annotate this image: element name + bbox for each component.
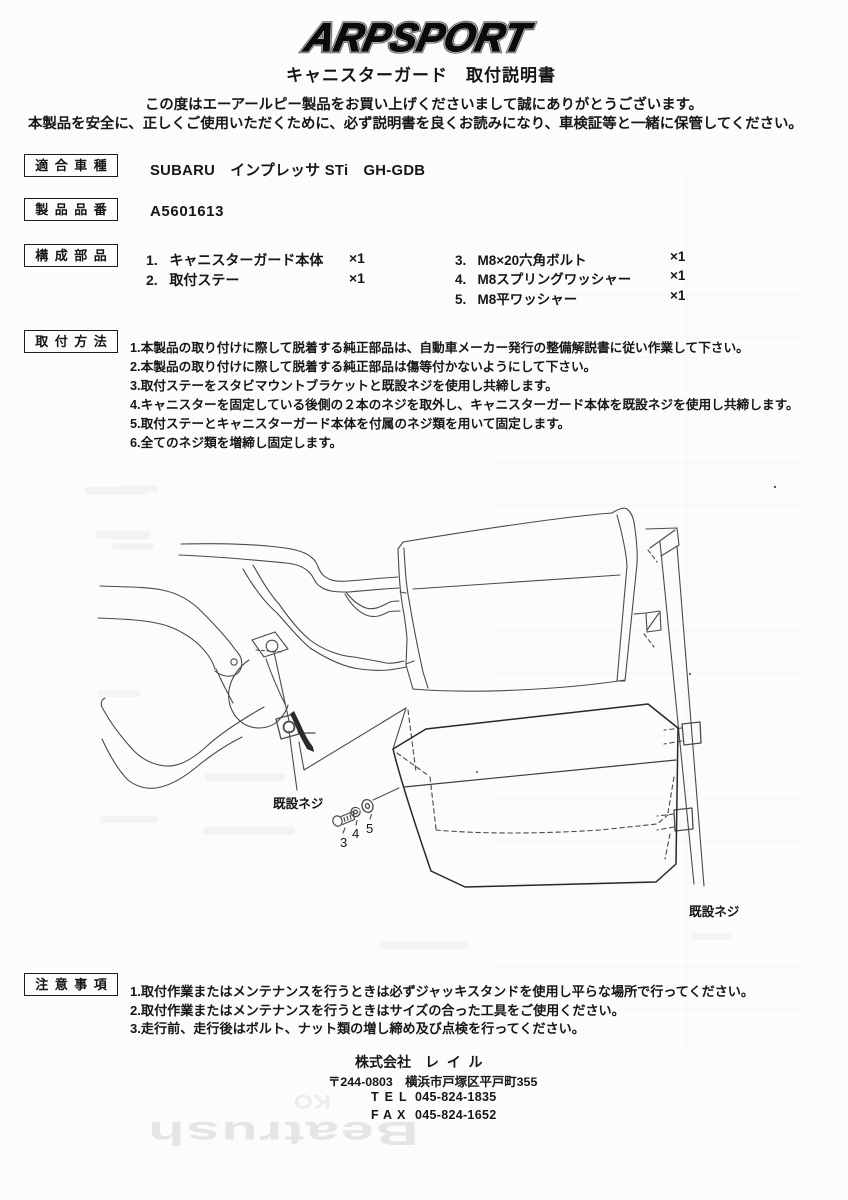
svg-text:ARPSPORT: ARPSPORT [300,14,537,59]
